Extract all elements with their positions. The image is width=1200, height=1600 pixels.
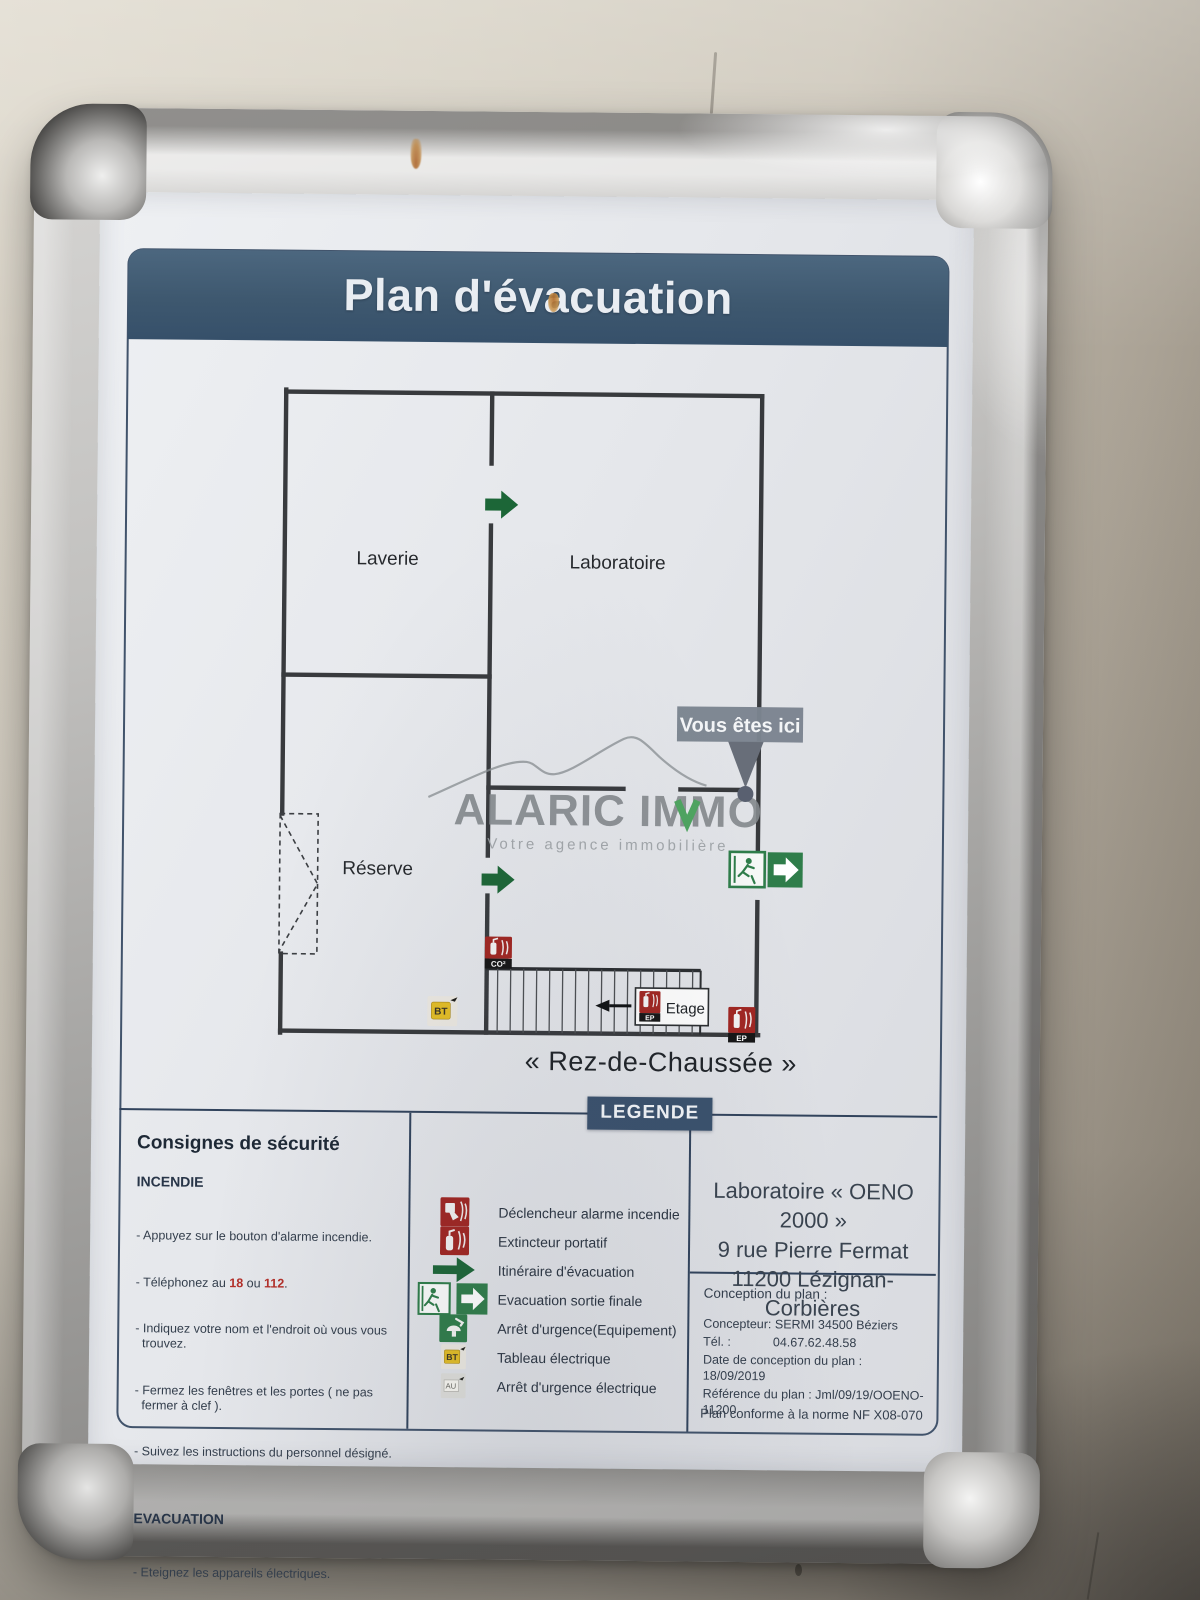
- title-band: Plan d'évacuation: [128, 249, 949, 347]
- ep-extinguisher-icon: EP: [728, 1007, 755, 1043]
- svg-text:Votre agence immobilière: Votre agence immobilière: [487, 836, 728, 855]
- electrical-panel-icon: BT: [409, 1344, 497, 1370]
- legend-row: Arrêt d'urgence(Equipement): [409, 1313, 687, 1345]
- rust-drip-stain: [410, 139, 421, 169]
- svg-text:AU: AU: [445, 1382, 456, 1391]
- establishment-street: 9 rue Pierre Fermat: [690, 1234, 936, 1266]
- frame-corner-top-right: [936, 112, 1053, 229]
- conception-heading: Conception du plan :: [704, 1286, 926, 1303]
- room-label-laboratoire: Laboratoire: [569, 552, 665, 574]
- legend-list: Déclencheur alarme incendie Extincteur p…: [409, 1197, 689, 1403]
- list-item: - Indiquez votre nom et l'endroit où vou…: [135, 1321, 395, 1353]
- final-exit-icon: [409, 1282, 497, 1316]
- emergency-stop-equipment-icon: [409, 1313, 497, 1342]
- legend-panel: LEGENDE Déclencheur alarme incendie: [408, 1113, 691, 1432]
- safety-instructions-title: Consignes de sécurité: [137, 1132, 397, 1156]
- svg-text:EP: EP: [645, 1015, 655, 1022]
- list-item: - Eteignez les appareils électriques.: [133, 1565, 393, 1582]
- wall-spot: [795, 1564, 802, 1576]
- emergency-number-112: 112: [264, 1276, 284, 1290]
- emergency-number-18: 18: [229, 1276, 243, 1290]
- photo-of-evacuation-plan: Plan d'évacuation: [0, 0, 1200, 1600]
- legend-label: Tableau électrique: [497, 1349, 611, 1366]
- conception-phone: Tél. :04.67.62.48.58: [703, 1334, 925, 1352]
- conception-date: Date de conception du plan : 18/09/2019: [703, 1352, 925, 1386]
- list-item: - Suivez les instructions du personnel d…: [134, 1444, 394, 1461]
- fire-alarm-call-point-icon: [410, 1197, 498, 1227]
- svg-text:ALARIC IMMO: ALARIC IMMO: [453, 785, 763, 837]
- fire-instructions-list: - Appuyez sur le bouton d'alarme incendi…: [134, 1198, 397, 1493]
- electrical-panel-bt-icon: BT: [427, 996, 457, 1026]
- aluminium-snap-frame: Plan d'évacuation: [21, 107, 1049, 1565]
- legend-row: BT Tableau électrique: [409, 1342, 687, 1374]
- evacuation-instructions-list: - Eteignez les appareils électriques. - …: [131, 1535, 393, 1600]
- info-table: Consignes de sécurité INCENDIE - Appuyez…: [116, 1108, 937, 1434]
- svg-text:BT: BT: [446, 1352, 458, 1362]
- list-item: - Fermez les fenêtres et les portes ( ne…: [134, 1383, 394, 1415]
- legend-label: Itinéraire d'évacuation: [498, 1262, 635, 1279]
- safety-instructions-panel: Consignes de sécurité INCENDIE - Appuyez…: [116, 1110, 411, 1429]
- legend-label: Arrêt d'urgence électrique: [497, 1378, 657, 1396]
- legend-label: Déclencheur alarme incendie: [498, 1204, 679, 1222]
- norm-compliance-note: Plan conforme à la norme NF X08-070: [688, 1406, 934, 1423]
- room-label-reserve: Réserve: [342, 858, 413, 880]
- legend-label: Arrêt d'urgence(Equipement): [497, 1320, 676, 1338]
- svg-text:EP: EP: [736, 1034, 747, 1043]
- phone-number: 04.67.62.48.58: [773, 1335, 857, 1350]
- wall-hanging-thread: [1087, 1532, 1100, 1599]
- svg-text:Vous êtes ici: Vous êtes ici: [680, 714, 801, 737]
- establishment-info-panel: Laboratoire « OENO 2000 » 9 rue Pierre F…: [688, 1116, 937, 1434]
- co2-extinguisher-icon: CO²: [485, 937, 512, 969]
- evacuation-plan-poster: Plan d'évacuation: [88, 192, 974, 1472]
- legend-row: Déclencheur alarme incendie: [410, 1197, 688, 1229]
- fire-section-heading: INCENDIE: [137, 1173, 397, 1191]
- legend-row: AU Arrêt d'urgence électrique: [409, 1371, 687, 1403]
- frame-corner-bottom-right: [923, 1452, 1040, 1569]
- frame-corner-top-left: [30, 103, 147, 220]
- legend-label: Extincteur portatif: [498, 1233, 607, 1250]
- room-label-laverie: Laverie: [356, 548, 419, 570]
- floor-name-label: « Rez-de-Chaussée »: [461, 1045, 861, 1080]
- page-title: Plan d'évacuation: [128, 267, 948, 327]
- portable-extinguisher-icon: [410, 1226, 498, 1256]
- legend-row: Evacuation sortie finale: [409, 1284, 687, 1316]
- electrical-emergency-stop-icon: AU: [409, 1373, 497, 1399]
- svg-text:BT: BT: [434, 1007, 447, 1018]
- stairs-to-floor-marker: EP Etage: [595, 988, 708, 1026]
- dashed-door-symbol: [279, 814, 318, 954]
- floor-plan: CO² EP: [276, 386, 827, 1051]
- legend-title: LEGENDE: [587, 1097, 712, 1131]
- legend-label: Evacuation sortie finale: [497, 1291, 642, 1308]
- final-exit-sign: [730, 852, 803, 888]
- conception-designer: Concepteur: SERMI 34500 Béziers: [703, 1316, 925, 1334]
- frame-corner-bottom-left: [17, 1443, 134, 1560]
- svg-text:CO²: CO²: [491, 960, 506, 969]
- evacuation-route-arrow-icon: [410, 1257, 498, 1283]
- wall-scratch-mark: [710, 52, 717, 114]
- evacuation-section-heading: EVACUATION: [133, 1510, 393, 1528]
- plan-conception-box: Conception du plan : Concepteur: SERMI 3…: [688, 1274, 936, 1434]
- establishment-address: Laboratoire « OENO 2000 » 9 rue Pierre F…: [690, 1116, 938, 1276]
- legend-row: Extincteur portatif: [410, 1226, 688, 1258]
- establishment-name: Laboratoire « OENO 2000 »: [690, 1176, 937, 1237]
- list-item: - Téléphonez au 18 ou 112.: [136, 1275, 396, 1292]
- list-item: - Appuyez sur le bouton d'alarme incendi…: [136, 1228, 396, 1245]
- alaric-immo-watermark: ALARIC IMMO Votre agence immobilière: [428, 735, 764, 855]
- svg-text:Etage: Etage: [666, 1000, 705, 1017]
